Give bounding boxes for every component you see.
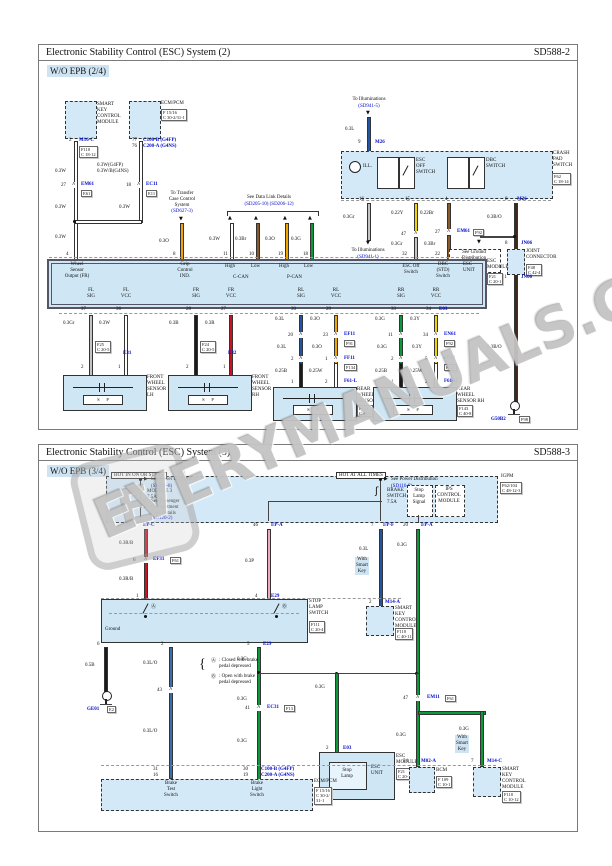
pin: 1 xyxy=(118,365,121,371)
arrow-down-icon: ▼ xyxy=(179,217,183,222)
wire-label: 0.3W xyxy=(99,321,110,327)
dashed-connector-line xyxy=(49,257,479,258)
dbc-switch-icon xyxy=(447,157,469,189)
arrow-down-icon: ▼ xyxy=(477,240,481,245)
bcm-label: BCM xyxy=(436,768,447,774)
panel1-code: SD588-2 xyxy=(534,47,570,58)
pin: 7 xyxy=(371,523,374,529)
wire-label: 0.3Gr xyxy=(343,215,355,221)
arrow-down-icon: ▼ xyxy=(366,111,370,116)
smart-key-module-label: SMART KEY CONTROL MODULE xyxy=(502,767,526,791)
bus-line xyxy=(268,501,269,521)
pin: 41 xyxy=(245,706,250,712)
illumination-note: To Illuminations xyxy=(337,248,399,254)
switch-a-mark: Ⓐ xyxy=(151,604,156,610)
ground-icon xyxy=(100,704,112,705)
connector-ref: F134 xyxy=(344,364,357,371)
wire-green xyxy=(418,711,486,715)
hecu-port-label: RL VCC xyxy=(328,288,344,300)
connector-chevron: ^ xyxy=(333,356,339,362)
connector-code: E29 xyxy=(263,642,271,648)
wire-label: 0.3G xyxy=(377,345,387,351)
wire-label: 0.3P xyxy=(245,559,254,565)
with-smart-key-note: With Smart Key xyxy=(455,735,469,753)
wire-label: 0.3G xyxy=(397,543,407,549)
hecu-port-label: High xyxy=(225,264,235,270)
esc-off-switch-label: ESC OFF SWITCH xyxy=(416,158,435,176)
wire-label: 0.3W xyxy=(209,237,220,243)
note-b-mark: Ⓑ xyxy=(211,674,216,680)
connector-chevron: ^ xyxy=(298,332,304,338)
wire-label: 0.3L xyxy=(275,317,284,323)
wire-label: 0.3Br xyxy=(424,242,435,248)
wire-green xyxy=(335,673,339,753)
panel1-title: Electronic Stability Control (ESC) Syste… xyxy=(46,47,230,58)
wire-label: 0.3O xyxy=(312,345,322,351)
connector-chevron: ^ xyxy=(415,695,421,701)
ips-control-module-label: IPS CONTROL MODULE xyxy=(435,487,463,505)
pin: 5 xyxy=(247,642,250,648)
connector-chevron: ^ xyxy=(333,332,339,338)
junction-dot xyxy=(513,235,516,238)
hecu-port-label: FR VCC xyxy=(223,288,239,300)
pin: 20 xyxy=(288,333,293,339)
illumination-lamp-icon xyxy=(349,161,361,173)
hecu-port-label: RR VCC xyxy=(428,288,444,300)
manual-page: Electronic Stability Control (ESC) Syste… xyxy=(0,0,612,866)
note-a-text: : Closed with brake pedal depressed xyxy=(219,658,258,670)
pin: 27 xyxy=(61,183,66,189)
pin: 76 xyxy=(132,144,137,150)
connector-chevron: ^ xyxy=(298,356,304,362)
switch-b-mark: Ⓑ xyxy=(282,604,287,610)
dbc-switch-label: DBC SWITCH xyxy=(486,158,505,170)
pin: 6 xyxy=(97,642,100,648)
wire-label: 0.3R/B xyxy=(119,577,133,583)
esc-module-label: ESC MODULE xyxy=(487,259,508,271)
pin: 1 xyxy=(291,380,294,386)
esc-unit-label: ESC UNIT xyxy=(371,765,383,777)
wire-label: 0.3B xyxy=(169,321,179,327)
pin: 1 xyxy=(223,365,226,371)
connector-code: M16-C xyxy=(79,138,94,144)
connector-chevron: ^ xyxy=(136,182,142,188)
note-a-mark: Ⓐ xyxy=(211,658,216,664)
ecm-pcm-label: ECM/PCM xyxy=(161,101,184,107)
esc-off-switch-contact xyxy=(399,157,415,189)
pin: 20 xyxy=(403,523,408,529)
wire-label: 0.3W(G4FP) 0.3W/B(G4NS) xyxy=(97,163,129,175)
wire-label: 0.3L/O xyxy=(143,661,157,667)
connector-ref: F91 xyxy=(344,340,355,347)
wire-label: 0.3W xyxy=(55,169,66,175)
wire-label: 0.3W xyxy=(119,205,130,211)
arrow-right-icon: ▶ xyxy=(384,477,388,482)
connector-code: EM61 xyxy=(81,182,94,188)
wire-black xyxy=(194,315,198,377)
wire-green xyxy=(416,529,420,677)
esc-off-switch-icon xyxy=(377,157,399,189)
power-distribution-note: See Power Distribution xyxy=(391,477,438,483)
contact-dot xyxy=(275,615,278,618)
hecu-port-label: Low xyxy=(251,264,260,270)
pin: 27 xyxy=(435,230,440,236)
pin: 8 xyxy=(505,241,508,247)
connector-code: JN06 xyxy=(521,275,532,281)
ground-ref: F98 xyxy=(519,416,530,423)
panel2-code: SD588-3 xyxy=(534,447,570,458)
ground-icon xyxy=(508,414,520,415)
connector-code: I/P-A xyxy=(271,523,283,529)
wire-label: 0.3O xyxy=(310,317,320,323)
brace xyxy=(227,211,319,216)
pin: 2 xyxy=(186,365,189,371)
ecm-pcm-ref: F 15/16 C 30-2/31-1 xyxy=(161,109,187,121)
ground-label: Ground xyxy=(105,627,120,633)
with-smart-key-note: With Smart Key xyxy=(355,557,369,575)
arrow-up-icon: ▲ xyxy=(308,216,312,221)
pin: 43 xyxy=(157,688,162,694)
wire-label: 0.3G xyxy=(459,727,469,733)
connector-code: C200-A (G4NS) xyxy=(143,144,176,150)
ecm-pcm-box xyxy=(129,101,161,139)
wire-pink xyxy=(267,529,271,603)
pin: 2 xyxy=(291,357,294,363)
fuse-label: BRAKE SWITCH 7.5A xyxy=(387,488,406,506)
bcm-box xyxy=(409,767,435,793)
transfer-case-link[interactable]: (SD627-3) xyxy=(151,209,213,215)
wire-label: 0.3G xyxy=(375,317,385,323)
hecu-port-label: Grip Control IND. xyxy=(163,262,207,280)
pin: 2 xyxy=(325,380,328,386)
ecm-pcm-ref: F 15/16 C 30-2/ 31-1 xyxy=(314,787,332,805)
pin: 18 xyxy=(126,183,131,189)
pin: 15 xyxy=(405,197,410,203)
ecm-pcm-label: ECM/PCM xyxy=(314,779,337,785)
pin: 9 xyxy=(358,140,361,146)
connector-code: M26 xyxy=(375,140,385,146)
igpm-label: IGPM xyxy=(501,474,514,480)
pin: 16 xyxy=(359,197,364,203)
smart-key-module-label: SMART KEY CONTROL MODULE xyxy=(97,102,121,126)
hecu-port-label: FR SIG xyxy=(188,288,204,300)
bus-line xyxy=(268,501,382,502)
connector-code: I/P-F xyxy=(383,523,394,529)
ground-code: GE01 xyxy=(87,707,99,713)
ground-code: G50B2 xyxy=(491,417,506,423)
dashed-connector-line xyxy=(101,598,401,599)
dbc-switch-contact xyxy=(469,157,485,189)
smart-key-module-box xyxy=(65,101,97,139)
hecu-port-label: RL SIG xyxy=(293,288,309,300)
stop-lamp-switch-label: STOP LAMP SWITCH xyxy=(309,599,328,617)
connector-ref: F13 xyxy=(284,705,295,712)
wire-label: 0.3Gr xyxy=(391,242,403,248)
wire-label: 0.3B/O xyxy=(487,215,502,221)
connector-ref: E61 xyxy=(81,190,92,197)
front-wheel-sensor-rh-box xyxy=(168,375,252,411)
connector-chevron: ^ xyxy=(71,182,77,188)
arrow-up-icon: ▲ xyxy=(254,216,258,221)
ground-ref: E2 xyxy=(107,706,116,713)
pin: 2 xyxy=(81,365,84,371)
wire-red xyxy=(229,315,233,377)
wire-white xyxy=(124,315,128,377)
joint-connector-label: JOINT CONNECTOR xyxy=(526,249,556,261)
connector-ref: F25 C 20-5 xyxy=(95,341,111,353)
hecu-port-label: Low xyxy=(304,264,313,270)
crash-pad-switch-label: CRASH PAD SWITCH xyxy=(553,151,572,169)
hecu-port-label: C-CAN xyxy=(233,275,249,281)
wire-label: 0.3Br xyxy=(235,237,246,243)
smart-key-module-ref: F110 C 10-12 xyxy=(502,791,521,803)
connector-ref: F110 C 18-12 xyxy=(79,146,98,158)
dashed-connector-line xyxy=(59,313,479,314)
pin: 23 xyxy=(323,333,328,339)
hecu-port-label: High xyxy=(279,264,289,270)
wire-yellow xyxy=(414,203,418,233)
fuse-feed-line xyxy=(380,479,381,521)
pin: 46 xyxy=(253,523,258,529)
wire-label: 0.25W xyxy=(309,369,322,375)
connector-code: M26 xyxy=(517,197,527,203)
hecu-port-label: DBC (STD) Switch xyxy=(429,262,457,280)
hecu-unit-label: ESC UNIT xyxy=(463,262,475,274)
pin: 47 xyxy=(403,696,408,702)
datalink-note: See Data Link Details xyxy=(189,195,349,201)
wire-label: 0.3R xyxy=(205,321,215,327)
connector-ref: F61 xyxy=(445,695,456,702)
pin: 1 xyxy=(325,357,328,363)
wire-label: 0.22Br xyxy=(420,211,434,217)
wire-label: 0.3G xyxy=(237,697,247,703)
pin: 2 xyxy=(69,138,72,144)
junction-dot xyxy=(379,478,382,481)
wire-label: 0.3L xyxy=(277,345,286,351)
wire-brown xyxy=(447,203,451,231)
wire-label: 0.5B xyxy=(85,663,95,669)
connector-chevron: ^ xyxy=(433,332,439,338)
connector-chevron: ^ xyxy=(256,705,262,711)
connector-code: EM11 xyxy=(427,695,440,701)
wire-black xyxy=(104,647,108,693)
arrow-up-icon: ▲ xyxy=(283,216,287,221)
connector-chevron: ^ xyxy=(398,332,404,338)
stop-lamp-switch-ref: F111 C 20-4 xyxy=(309,621,325,633)
front-wheel-sensor-lh-box xyxy=(63,375,147,411)
sensor-sp-label: S P xyxy=(188,395,228,405)
wire-gray xyxy=(367,203,371,241)
dashed-internal-line xyxy=(109,613,299,614)
hecu-port-label: P-CAN xyxy=(287,275,302,281)
pin: 11 xyxy=(388,333,393,339)
sensor-symbol xyxy=(204,383,210,392)
connector-code: E31 xyxy=(123,351,131,357)
wire-blue xyxy=(367,117,371,153)
hecu-port-label: FL VCC xyxy=(118,288,134,300)
wire-blue xyxy=(379,529,383,607)
stop-lamp-signal-label: Stop Lamp Signal xyxy=(407,488,431,506)
pin: 2 xyxy=(161,642,164,648)
wire-label: 0.3G xyxy=(315,685,325,691)
pin: 47 xyxy=(401,232,406,238)
contact-dot xyxy=(144,615,147,618)
dashed-connector-line xyxy=(101,765,496,766)
brake-light-switch-label: Brake Light Switch xyxy=(237,781,277,799)
pin: 8 xyxy=(505,197,508,203)
connector-code: FF11 xyxy=(344,356,355,362)
smart-key-module-box xyxy=(473,767,501,797)
brace: { xyxy=(199,657,206,674)
wire-label: 0.3W xyxy=(55,205,66,211)
lamp-label: ILL. xyxy=(363,164,372,170)
wire-label: 0.3O xyxy=(265,237,275,243)
wire-label: 0.3G xyxy=(396,733,406,739)
connector-code: JN06 xyxy=(521,241,532,247)
connector-ref: F61 xyxy=(170,557,181,564)
wire-label: 0.3L xyxy=(359,547,368,553)
connector-code: I/P-A xyxy=(421,523,433,529)
wire-label: 0.3Y xyxy=(410,317,420,323)
hecu-port-label: RR SIG xyxy=(393,288,409,300)
connector-code: EC11 xyxy=(146,182,158,188)
wire-green xyxy=(416,673,420,767)
ground-icon xyxy=(510,401,520,411)
wire-label: 0.3G xyxy=(291,237,301,243)
wire-label: 0.25B xyxy=(275,369,287,375)
branch-line xyxy=(480,236,514,238)
wire-green xyxy=(480,711,484,767)
wire-gray xyxy=(89,315,93,377)
fuse-icon: ʃ xyxy=(375,487,378,497)
wire-label: 0.22Y xyxy=(391,211,403,217)
crash-pad-switch-ref: F62 C 18-14 xyxy=(552,173,571,185)
brake-test-switch-label: Brake Test Switch xyxy=(151,781,191,799)
signal-line xyxy=(418,515,419,523)
ground-icon xyxy=(102,691,112,701)
wire-label: 0.3W xyxy=(55,235,66,241)
wire-blue-orange xyxy=(169,647,173,779)
junction-dot xyxy=(73,220,76,223)
joint-connector-box xyxy=(507,249,525,275)
smart-key-module-ref: F110 C 40-11 xyxy=(395,628,413,640)
connector-code: E32 xyxy=(228,351,236,357)
wire-white xyxy=(75,220,142,224)
datalink-link[interactable]: (SD205-10) (SD206-12) xyxy=(189,202,349,208)
wire-label: 0.3L/O xyxy=(143,729,157,735)
wire-white xyxy=(74,141,78,263)
note-b-text: : Open with brake pedal depressed xyxy=(219,674,255,686)
rear-wheel-sensor-rh-ref: F143 C 40-8 xyxy=(457,405,473,417)
bcm-ref: F 109 C 10-1 xyxy=(436,776,452,788)
wire-black xyxy=(299,363,303,389)
illumination-note: To Illuminations xyxy=(339,97,399,103)
sensor-symbol xyxy=(99,383,105,392)
panel1-variant-badge: W/O EPB (2/4) xyxy=(47,65,109,77)
connector-chevron: ^ xyxy=(168,687,174,693)
wire-label: 0.3Gr xyxy=(63,321,75,327)
connector-code: EC31 xyxy=(267,705,279,711)
wire-label: 0.3G xyxy=(237,739,247,745)
sensor-sp-label: S P xyxy=(83,395,123,405)
connector-code: EF11 xyxy=(344,332,355,338)
hecu-port-label: FL SIG xyxy=(83,288,99,300)
hecu-port-label: ESC Off Switch xyxy=(391,264,431,276)
connector-ref: F24 C 20-5 xyxy=(200,341,216,353)
ecm-pcm-box xyxy=(101,779,313,811)
smart-key-module-box xyxy=(366,606,394,636)
panel1-title-bar: Electronic Stability Control (ESC) Syste… xyxy=(39,45,577,61)
wire-label: 0.3O xyxy=(159,239,169,245)
hecu-port-label: Wheel Sensor Output (FR) xyxy=(53,262,101,280)
wire-label: 0.3L xyxy=(345,127,354,133)
igpm-ref: F62/104 C 48-12-3 xyxy=(500,482,522,494)
esc-module-ref: F21 C 20-1 xyxy=(487,273,503,285)
front-wheel-sensor-lh-label: FRONT WHEEL SENSOR LH xyxy=(147,375,166,399)
arrow-up-icon: ▲ xyxy=(228,216,232,221)
pin: 34 xyxy=(423,333,428,339)
front-wheel-sensor-rh-label: FRONT WHEEL SENSOR RH xyxy=(252,375,271,399)
connector-code: EM61 xyxy=(457,229,470,235)
arrow-down-icon: ▼ xyxy=(366,241,370,246)
